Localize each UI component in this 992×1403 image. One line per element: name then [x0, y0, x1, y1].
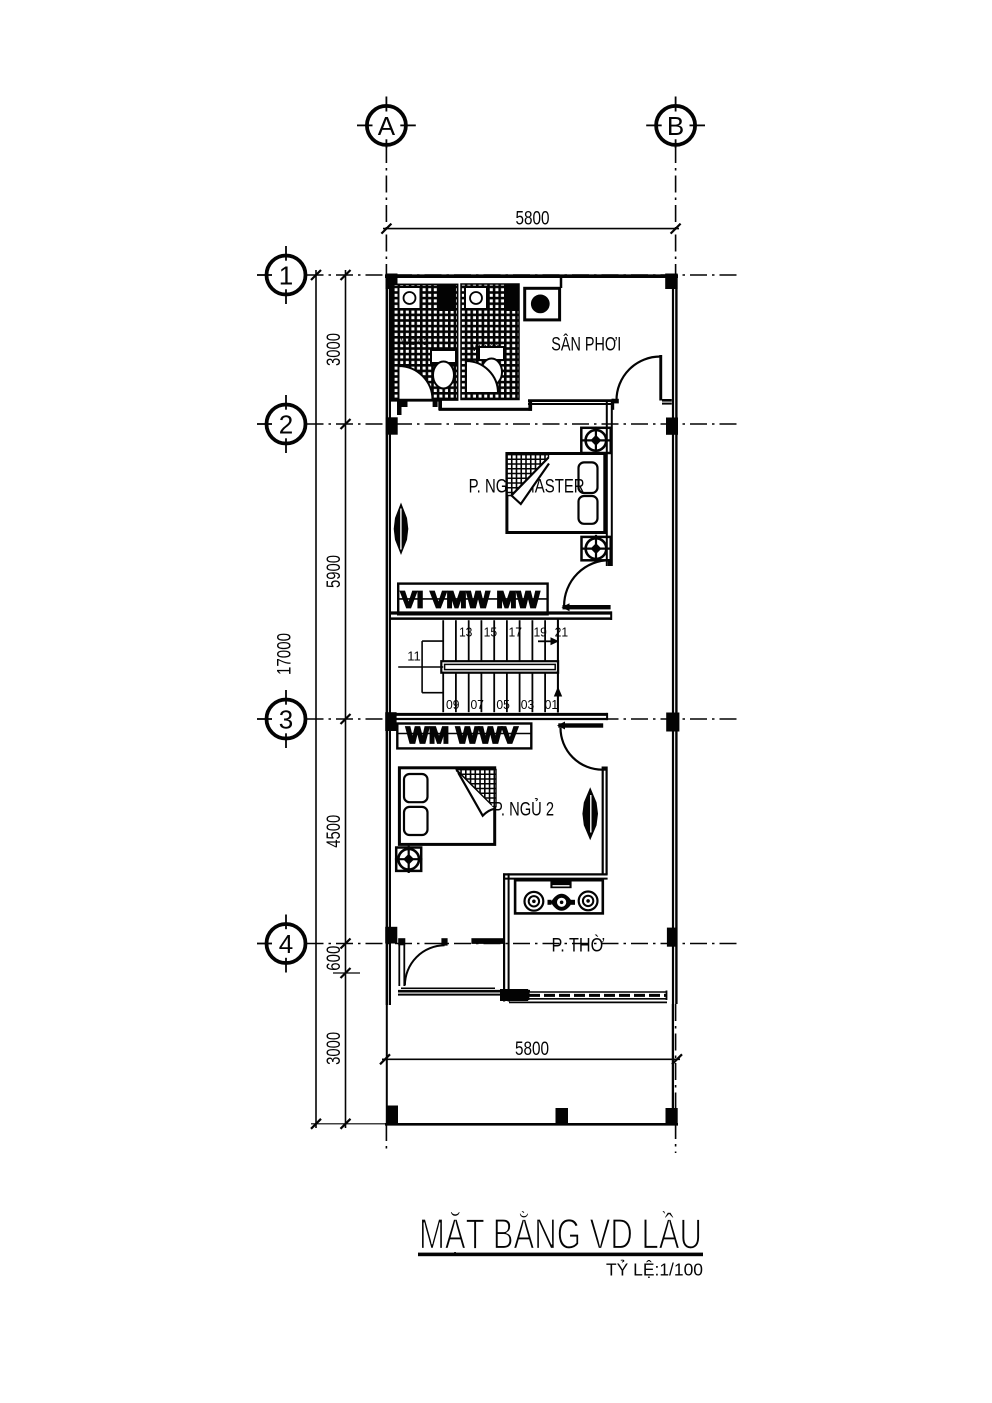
svg-text:05: 05 — [496, 698, 510, 712]
svg-text:600: 600 — [323, 946, 345, 971]
svg-text:1: 1 — [279, 260, 293, 290]
svg-text:21: 21 — [555, 626, 569, 640]
svg-text:03: 03 — [521, 698, 535, 712]
svg-text:4500: 4500 — [323, 815, 345, 848]
svg-text:5800: 5800 — [515, 1038, 549, 1060]
svg-text:2: 2 — [279, 409, 293, 439]
svg-text:5800: 5800 — [516, 208, 550, 230]
svg-text:WM WWV: WM WWV — [406, 722, 518, 748]
svg-text:P. THỜ: P. THỜ — [552, 934, 605, 957]
svg-text:SÂN PHƠI: SÂN PHƠI — [551, 333, 621, 356]
svg-text:13: 13 — [459, 626, 473, 640]
svg-text:TỶ LỆ:1/100: TỶ LỆ:1/100 — [606, 1259, 703, 1280]
svg-text:07: 07 — [470, 698, 484, 712]
svg-text:17: 17 — [509, 626, 523, 640]
svg-text:11: 11 — [407, 649, 421, 663]
svg-text:WC 02: WC 02 — [401, 337, 428, 348]
svg-text:3: 3 — [279, 704, 293, 734]
svg-text:09: 09 — [446, 698, 460, 712]
svg-text:3000: 3000 — [323, 1032, 345, 1065]
svg-text:VI VMW MW: VI VMW MW — [401, 587, 541, 613]
svg-text:A: A — [378, 111, 396, 141]
svg-text:17000: 17000 — [274, 633, 296, 675]
svg-text:5900: 5900 — [323, 555, 345, 588]
svg-text:01: 01 — [545, 698, 559, 712]
svg-text:4: 4 — [279, 929, 293, 959]
svg-text:19: 19 — [533, 626, 547, 640]
svg-text:P. NGỦ 2: P. NGỦ 2 — [493, 797, 554, 821]
svg-text:3000: 3000 — [323, 333, 345, 366]
svg-text:B: B — [667, 111, 684, 141]
svg-text:MẶT BẰNG VD LẦU: MẶT BẰNG VD LẦU — [419, 1211, 702, 1259]
svg-text:15: 15 — [484, 626, 498, 640]
